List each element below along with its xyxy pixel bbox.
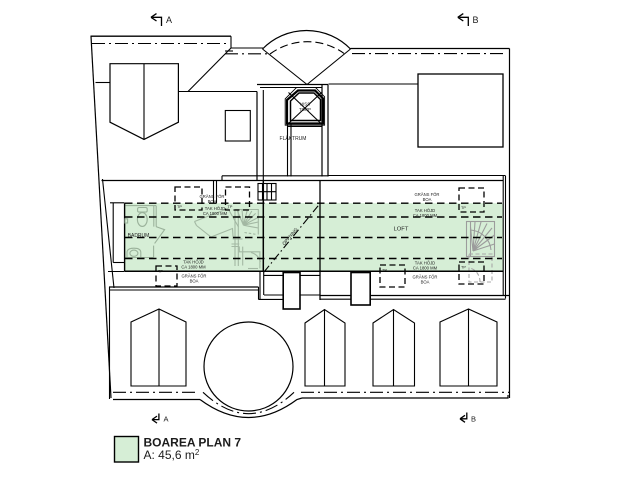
svg-text:TP: TP — [158, 270, 163, 274]
svg-text:TP: TP — [382, 269, 387, 273]
svg-text:BADRUM: BADRUM — [128, 233, 150, 239]
svg-text:A: A — [166, 15, 172, 25]
svg-text:A: 45,6 m2: A: 45,6 m2 — [144, 448, 200, 462]
svg-text:TP: TP — [228, 205, 233, 209]
svg-text:BOA: BOA — [190, 279, 199, 284]
svg-text:TP: TP — [461, 266, 466, 270]
svg-text:CA 1800 MM: CA 1800 MM — [181, 265, 206, 270]
svg-text:HISS: HISS — [300, 102, 310, 107]
svg-text:LOFT: LOFT — [394, 227, 409, 233]
svg-text:CA 1800 MM: CA 1800 MM — [413, 266, 438, 271]
svg-text:TP: TP — [177, 205, 182, 209]
svg-text:TOPP: TOPP — [299, 107, 311, 112]
svg-text:B: B — [473, 15, 479, 25]
svg-text:BOA: BOA — [208, 199, 217, 204]
svg-text:CA 1800 MM: CA 1800 MM — [203, 211, 228, 216]
svg-text:FLÄKTRUM: FLÄKTRUM — [280, 135, 307, 142]
svg-text:B: B — [471, 415, 476, 424]
svg-text:CA 1800 MM: CA 1800 MM — [413, 213, 438, 218]
svg-text:TP: TP — [461, 206, 466, 210]
svg-text:A: A — [164, 415, 169, 424]
svg-text:BOA: BOA — [423, 197, 432, 202]
svg-text:BOA: BOA — [421, 280, 430, 285]
